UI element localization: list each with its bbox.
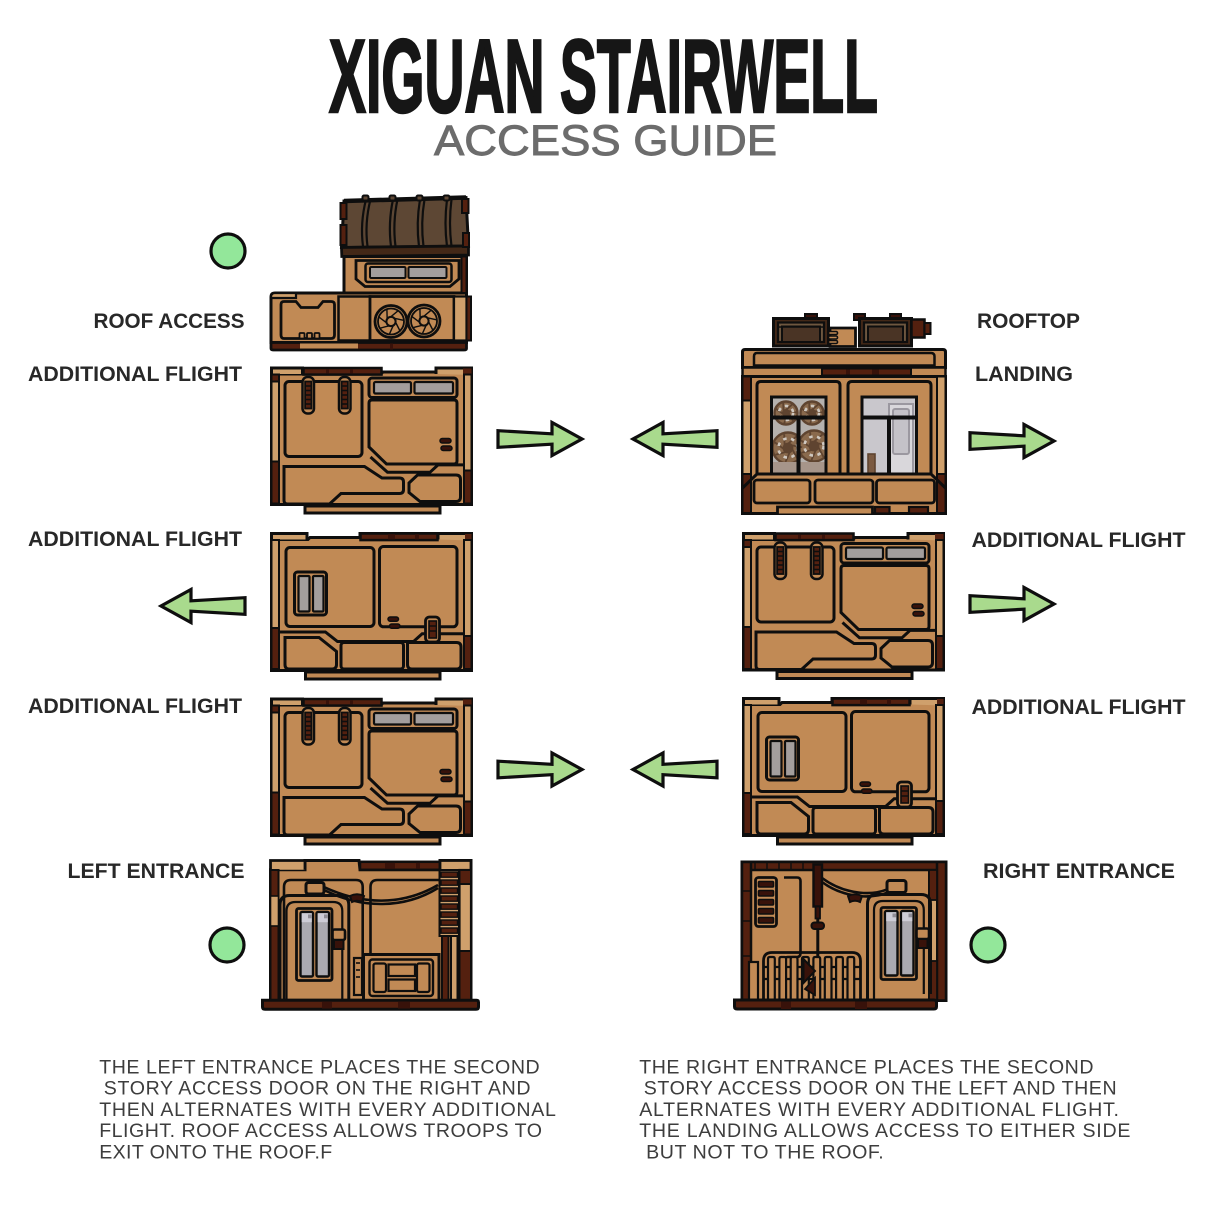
svg-text:ALTERNATES WITH EVERY ADDITION: ALTERNATES WITH EVERY ADDITIONAL FLIGHT. <box>639 1099 1119 1121</box>
svg-text:ADDITIONAL FLIGHT: ADDITIONAL FLIGHT <box>972 529 1186 552</box>
svg-text:BUT NOT TO THE ROOF.: BUT NOT TO THE ROOF. <box>646 1141 884 1163</box>
svg-text:STORY ACCESS DOOR ON THE RIGHT: STORY ACCESS DOOR ON THE RIGHT AND <box>104 1078 531 1100</box>
svg-text:RIGHT ENTRANCE: RIGHT ENTRANCE <box>983 860 1175 883</box>
svg-text:THE RIGHT ENTRANCE PLACES THE: THE RIGHT ENTRANCE PLACES THE SECOND <box>639 1057 1093 1079</box>
svg-text:ROOF ACCESS: ROOF ACCESS <box>94 310 245 333</box>
svg-text:STORY ACCESS DOOR ON THE LEFT: STORY ACCESS DOOR ON THE LEFT AND THEN <box>644 1078 1117 1100</box>
svg-text:ADDITIONAL FLIGHT: ADDITIONAL FLIGHT <box>972 696 1186 719</box>
svg-text:LANDING: LANDING <box>975 363 1073 386</box>
svg-text:LEFT ENTRANCE: LEFT ENTRANCE <box>68 860 245 883</box>
svg-text:FLIGHT. ROOF ACCESS ALLOWS TRO: FLIGHT. ROOF ACCESS ALLOWS TROOPS TO <box>99 1120 542 1142</box>
svg-text:ADDITIONAL FLIGHT: ADDITIONAL FLIGHT <box>28 363 242 386</box>
svg-text:ROOFTOP: ROOFTOP <box>977 310 1080 333</box>
svg-text:THE LANDING ALLOWS ACCESS TO E: THE LANDING ALLOWS ACCESS TO EITHER SIDE <box>639 1120 1130 1142</box>
svg-text:ADDITIONAL FLIGHT: ADDITIONAL FLIGHT <box>28 695 242 718</box>
svg-text:ACCESS GUIDE: ACCESS GUIDE <box>434 118 777 165</box>
svg-text:THE LEFT ENTRANCE PLACES THE S: THE LEFT ENTRANCE PLACES THE SECOND <box>99 1057 540 1079</box>
svg-text:EXIT ONTO THE ROOF.F: EXIT ONTO THE ROOF.F <box>99 1141 332 1163</box>
svg-text:ADDITIONAL FLIGHT: ADDITIONAL FLIGHT <box>28 528 242 551</box>
svg-text:THEN ALTERNATES WITH EVERY ADD: THEN ALTERNATES WITH EVERY ADDITIONAL <box>99 1099 556 1121</box>
